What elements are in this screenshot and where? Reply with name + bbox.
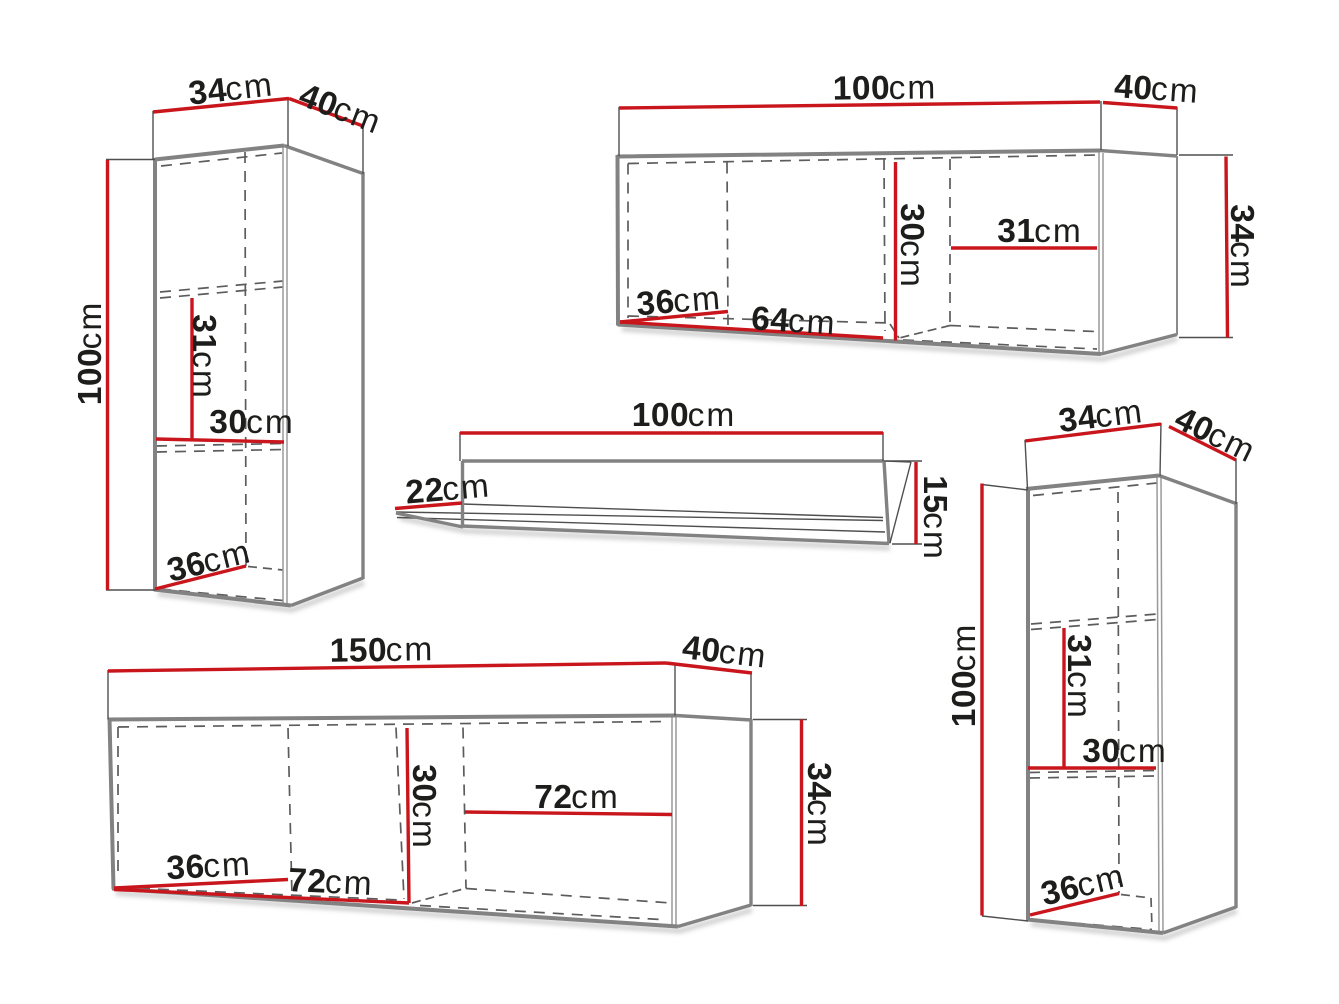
svg-text:31cm: 31cm bbox=[997, 213, 1082, 250]
svg-text:36cm: 36cm bbox=[165, 846, 252, 887]
svg-text:15cm: 15cm bbox=[916, 475, 953, 560]
svg-text:30cm: 30cm bbox=[209, 404, 294, 441]
svg-text:30cm: 30cm bbox=[893, 203, 930, 288]
svg-text:31cm: 31cm bbox=[1060, 634, 1097, 719]
svg-text:31cm: 31cm bbox=[185, 314, 222, 399]
svg-text:72cm: 72cm bbox=[287, 862, 374, 903]
svg-text:40cm: 40cm bbox=[294, 77, 387, 142]
svg-text:40cm: 40cm bbox=[1169, 400, 1262, 471]
svg-text:64cm: 64cm bbox=[750, 300, 838, 342]
svg-text:30cm: 30cm bbox=[1082, 733, 1167, 770]
svg-text:34cm: 34cm bbox=[187, 66, 276, 112]
svg-text:36cm: 36cm bbox=[1038, 857, 1130, 913]
svg-text:40cm: 40cm bbox=[1113, 68, 1201, 111]
svg-text:100cm: 100cm bbox=[946, 623, 983, 728]
svg-text:72cm: 72cm bbox=[534, 779, 619, 816]
svg-text:30cm: 30cm bbox=[405, 764, 442, 849]
svg-text:40cm: 40cm bbox=[680, 629, 769, 676]
svg-text:100cm: 100cm bbox=[72, 301, 109, 406]
svg-text:34cm: 34cm bbox=[1057, 393, 1146, 440]
svg-text:34cm: 34cm bbox=[800, 762, 837, 847]
svg-text:36cm: 36cm bbox=[163, 533, 255, 590]
svg-text:100cm: 100cm bbox=[833, 69, 938, 107]
svg-text:36cm: 36cm bbox=[635, 280, 723, 324]
svg-text:34cm: 34cm bbox=[1223, 204, 1260, 289]
svg-text:100cm: 100cm bbox=[632, 397, 737, 434]
svg-text:22cm: 22cm bbox=[404, 467, 492, 511]
svg-text:150cm: 150cm bbox=[329, 631, 434, 669]
